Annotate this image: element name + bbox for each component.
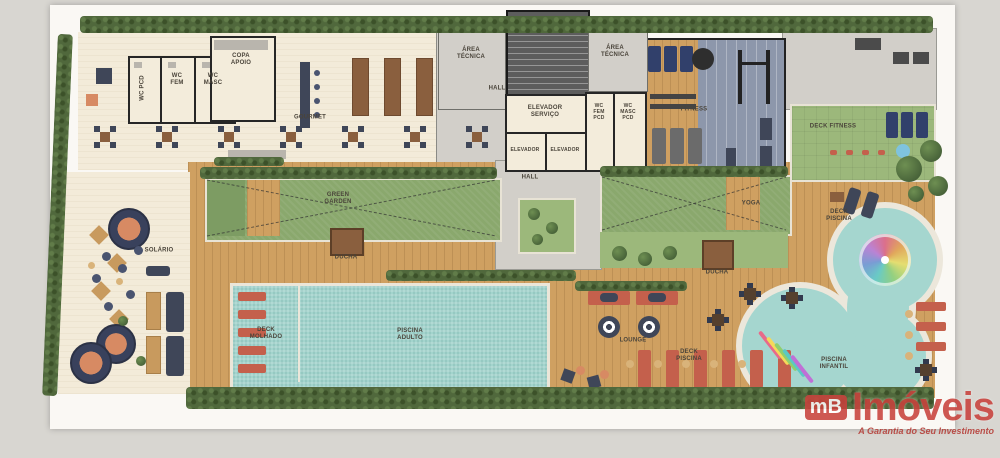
adult-pool bbox=[230, 283, 550, 391]
bar-stool bbox=[314, 112, 320, 118]
wet-deck-lounger bbox=[238, 346, 266, 355]
round-daybed bbox=[108, 208, 150, 250]
floor-plan: COPA APOIO WC PCD WC FEM WC MASC GOURMET… bbox=[0, 0, 1000, 458]
bar-counter bbox=[300, 62, 310, 128]
pergola-green-right bbox=[600, 175, 792, 236]
cross-dining-table bbox=[410, 132, 420, 142]
yoga-platform bbox=[726, 177, 760, 230]
top-hedge bbox=[80, 16, 933, 33]
sun-lounger bbox=[750, 350, 763, 388]
pouf-seat bbox=[576, 366, 585, 375]
pouf bbox=[88, 262, 95, 269]
sun-lounger bbox=[694, 350, 707, 388]
red-bench bbox=[916, 342, 946, 351]
cross-dining-table bbox=[472, 132, 482, 142]
sun-lounger bbox=[666, 350, 679, 388]
pergola-left-wood-strip bbox=[247, 180, 280, 236]
deck-table bbox=[920, 364, 932, 376]
deck-table bbox=[712, 314, 724, 326]
squat-rack-post bbox=[738, 50, 742, 104]
area-tecnica-right bbox=[588, 30, 648, 92]
watermark: mB Imóveis A Garantia do Seu Investiment… bbox=[805, 385, 994, 436]
round-daybed bbox=[70, 342, 112, 384]
watermark-logo-name: Imóveis bbox=[852, 385, 994, 430]
deck-table bbox=[786, 292, 798, 304]
lawn-palm bbox=[663, 246, 677, 260]
gym-machine bbox=[760, 118, 772, 140]
dumbbell-rack bbox=[650, 94, 696, 99]
wc-fixture bbox=[168, 62, 176, 68]
cross-dining-table bbox=[224, 132, 234, 142]
pergola-left-hedge bbox=[200, 167, 497, 179]
round-pouf bbox=[905, 331, 913, 339]
wc-fixture bbox=[134, 62, 142, 68]
lounge-seat bbox=[86, 94, 98, 106]
double-lounger bbox=[166, 292, 184, 332]
pouf bbox=[104, 302, 113, 311]
turf-marker bbox=[878, 150, 885, 155]
side-table bbox=[626, 360, 634, 368]
lawn-palm bbox=[638, 252, 652, 266]
pouf bbox=[118, 264, 127, 273]
shrub bbox=[136, 356, 146, 366]
cross-dining-table bbox=[348, 132, 358, 142]
turf-mat bbox=[901, 112, 913, 138]
wood-lounger bbox=[146, 336, 161, 374]
red-bench bbox=[916, 302, 946, 311]
sun-lounger bbox=[638, 350, 651, 388]
service-elevator-room bbox=[505, 94, 589, 136]
tree bbox=[896, 156, 922, 182]
watermark-logo-badge: mB bbox=[805, 395, 847, 420]
ac-unit bbox=[855, 38, 881, 50]
pergola-left-dark-panel bbox=[207, 180, 245, 236]
cross-dining-table bbox=[286, 132, 296, 142]
side-table bbox=[710, 360, 718, 368]
elevator-1-cell bbox=[505, 132, 549, 172]
pouf bbox=[134, 246, 143, 255]
pouf-seat bbox=[600, 370, 609, 379]
pouf bbox=[92, 274, 101, 283]
shower-box-left bbox=[330, 228, 364, 256]
deck-table bbox=[744, 288, 756, 300]
sun-lounger bbox=[722, 350, 735, 388]
tree bbox=[920, 140, 942, 162]
bar-stool bbox=[314, 98, 320, 104]
double-lounger bbox=[166, 336, 184, 376]
tree bbox=[908, 186, 924, 202]
grill bbox=[648, 293, 666, 302]
treadmill bbox=[688, 128, 702, 164]
exercise-mat bbox=[648, 46, 661, 72]
wc-fem-room bbox=[160, 56, 198, 124]
shrub bbox=[118, 316, 128, 326]
pergola-right-hedge bbox=[600, 166, 788, 177]
ac-unit bbox=[913, 52, 929, 64]
lawn-strip bbox=[600, 232, 788, 268]
dining-long-table bbox=[416, 58, 433, 116]
courtyard-palm bbox=[532, 234, 543, 245]
wc-masc-pcd-room bbox=[613, 92, 647, 172]
grill bbox=[600, 293, 618, 302]
squat-rack-bar bbox=[738, 62, 770, 65]
turf-mat bbox=[916, 112, 928, 138]
cross-dining-table bbox=[162, 132, 172, 142]
tree bbox=[928, 176, 948, 196]
wc-fixture bbox=[202, 62, 210, 68]
round-rug bbox=[692, 48, 714, 70]
pouf bbox=[116, 278, 123, 285]
pouf bbox=[126, 290, 135, 299]
elevator-2-cell bbox=[545, 132, 589, 172]
pouf bbox=[102, 252, 111, 261]
pinwheel-center bbox=[881, 256, 889, 264]
courtyard-palm bbox=[528, 208, 540, 220]
side-table bbox=[682, 360, 690, 368]
lounge-seat bbox=[96, 68, 112, 84]
squat-rack-post bbox=[766, 50, 770, 104]
courtyard-palm bbox=[546, 222, 558, 234]
bistro-table bbox=[598, 316, 620, 338]
gym-bench bbox=[726, 148, 736, 168]
gourmet-front-hedge bbox=[214, 157, 284, 166]
pergola-sofa bbox=[146, 266, 170, 276]
exercise-mat bbox=[664, 46, 677, 72]
wet-deck-lounger bbox=[238, 328, 266, 337]
turf-marker bbox=[830, 150, 837, 155]
dumbbell-rack bbox=[650, 104, 696, 109]
bistro-table bbox=[638, 316, 660, 338]
dining-long-table bbox=[384, 58, 401, 116]
lawn-palm bbox=[612, 246, 627, 261]
round-pouf bbox=[905, 352, 913, 360]
ac-unit bbox=[893, 52, 909, 64]
round-pouf bbox=[905, 310, 913, 318]
wet-deck-lounger bbox=[238, 310, 266, 319]
side-table bbox=[738, 360, 746, 368]
bbq-garland-hedge bbox=[575, 281, 687, 291]
treadmill bbox=[670, 128, 684, 164]
turf-mat bbox=[886, 112, 898, 138]
watermark-tagline: A Garantia do Seu Investimento bbox=[858, 426, 994, 436]
turf-marker bbox=[862, 150, 869, 155]
side-table bbox=[654, 360, 662, 368]
bar-stool bbox=[314, 70, 320, 76]
wet-deck-divider bbox=[298, 286, 300, 382]
wet-deck-lounger bbox=[238, 292, 266, 301]
dining-long-table bbox=[352, 58, 369, 116]
wood-lounger bbox=[146, 292, 161, 330]
gym-machine bbox=[760, 146, 772, 168]
red-bench bbox=[916, 322, 946, 331]
treadmill bbox=[652, 128, 666, 164]
kids-pool-side-table bbox=[830, 192, 844, 202]
pool-top-hedge bbox=[386, 270, 576, 281]
copa-counter bbox=[214, 40, 268, 50]
cross-dining-table bbox=[100, 132, 110, 142]
shower-box-right bbox=[702, 240, 734, 270]
wet-deck-lounger bbox=[238, 364, 266, 373]
turf-marker bbox=[846, 150, 853, 155]
area-tecnica-left bbox=[438, 32, 506, 110]
bar-stool bbox=[314, 84, 320, 90]
